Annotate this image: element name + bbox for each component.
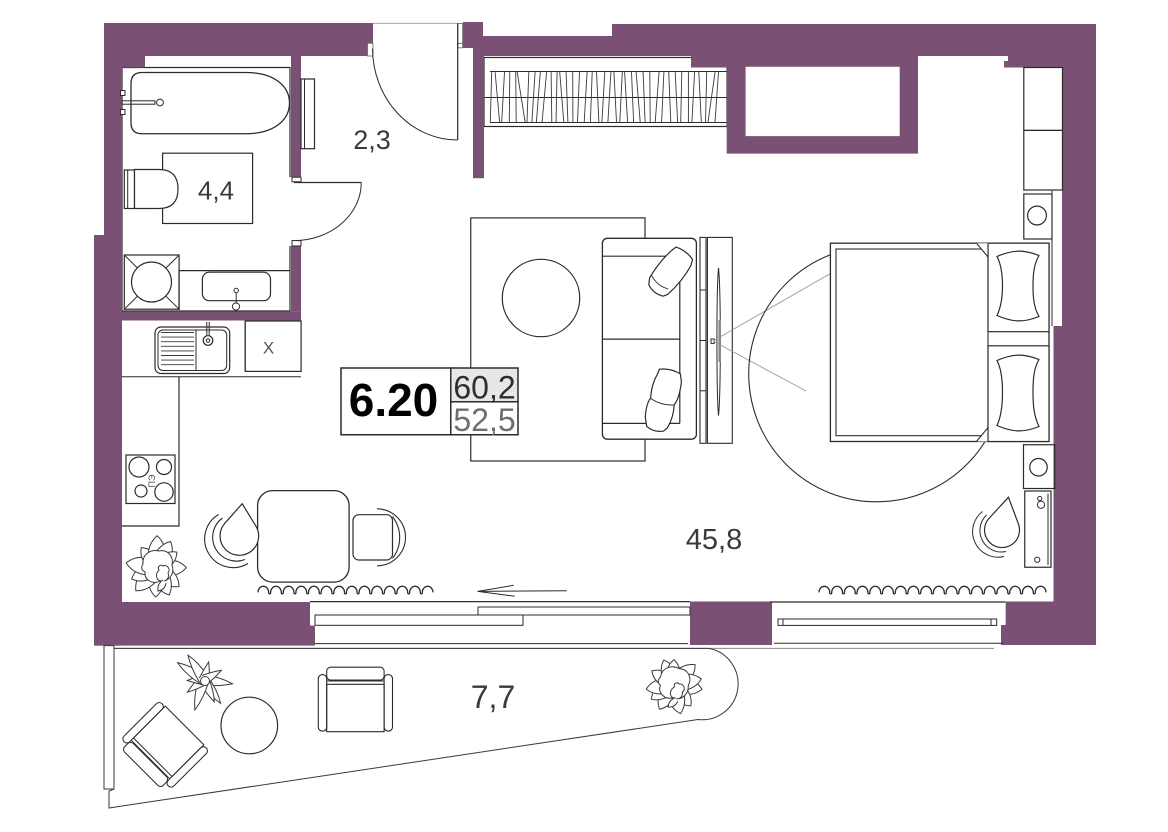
- svg-text:X: X: [263, 339, 274, 358]
- svg-text:52,5: 52,5: [453, 402, 515, 438]
- svg-text:4,4: 4,4: [198, 176, 234, 206]
- svg-text:6.20: 6.20: [349, 374, 439, 426]
- svg-text:ПЭ: ПЭ: [147, 474, 157, 487]
- svg-text:7,7: 7,7: [471, 679, 515, 715]
- svg-text:2,3: 2,3: [353, 125, 391, 155]
- svg-text:60,2: 60,2: [453, 370, 515, 406]
- svg-text:45,8: 45,8: [686, 524, 742, 556]
